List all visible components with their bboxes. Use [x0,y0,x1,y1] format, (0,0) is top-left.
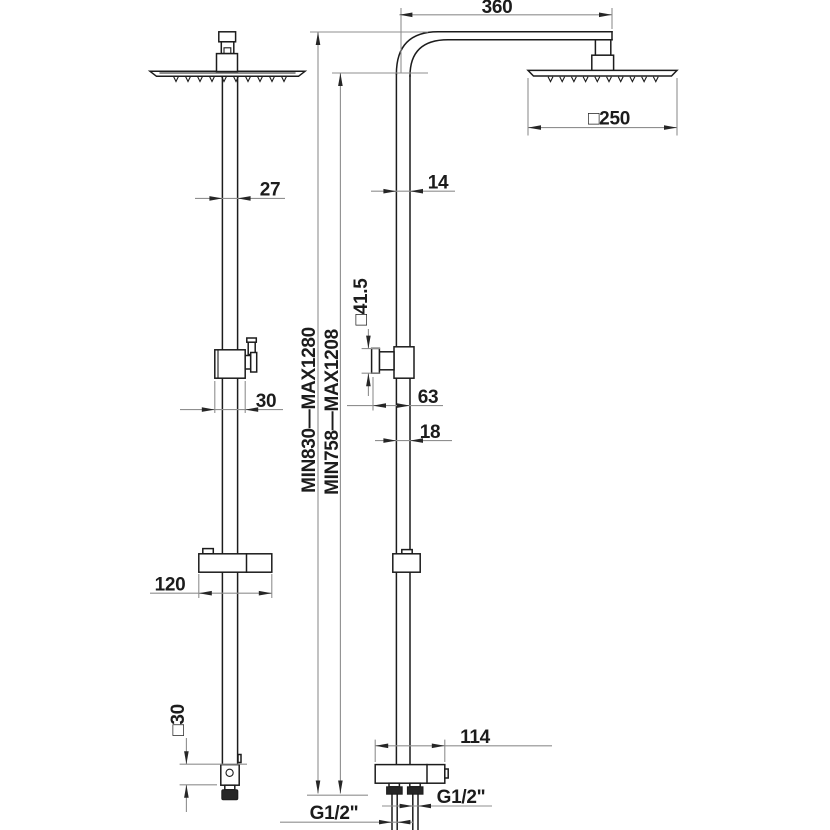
dim-pipe-width-front: 14 [371,172,455,193]
side-head-connector [217,32,238,72]
dim-arm-length: 360 [399,0,612,73]
side-slider-bracket [199,549,272,573]
side-view [150,32,305,800]
dim-height-outer-label: MIN830—MAX1280 [299,327,320,493]
dim-head-size: □250 [528,78,677,136]
dim-diverter-width-side-label: 30 [256,391,277,412]
dim-base-size-label: □30 [168,704,189,736]
side-base [221,755,241,800]
front-head-connector [592,40,614,71]
dim-height-inner-label: MIN758—MAX1208 [322,329,343,495]
side-head-nozzles [174,77,286,82]
front-head-nozzles [548,77,658,81]
dim-outlet-right-label: G1/2" [437,787,486,808]
dim-diverter-size-label: □41.5 [351,278,372,326]
dim-diverter-offset-label: 63 [418,387,439,408]
dim-wall-bracket: 114 [375,727,552,762]
dim-pipe-width-front-label: 14 [428,172,449,193]
dim-height-outer: MIN830—MAX1280 [299,32,428,794]
side-diverter-knob [251,353,257,373]
shower-arm [396,32,612,76]
front-view [372,32,677,830]
dim-head-size-label: □250 [588,109,630,130]
shower-column-drawing: 360 □250 27 14 [0,0,830,830]
dim-diverter-size: □41.5 [351,278,380,396]
dimensions: 360 □250 27 14 [150,0,677,824]
right-outlet-nut [407,787,423,794]
side-inlet-nut [222,790,238,800]
dim-arm-length-label: 360 [482,0,513,18]
side-diverter [215,338,257,378]
technical-drawing-canvas: 360 □250 27 14 [0,0,830,830]
dim-diverter-offset: 63 [347,377,443,411]
dim-lower-pipe-width-label: 18 [420,422,441,443]
left-outlet-nut [387,787,403,794]
dim-diverter-width-side: 30 [180,381,283,413]
front-diverter-stem [379,352,394,370]
front-diverter-knob [372,348,380,373]
dim-lower-pipe-width: 18 [375,422,452,443]
dim-pipe-width-side-label: 27 [260,180,281,201]
dim-outlet-left-label: G1/2" [310,803,359,824]
dim-pipe-width-side: 27 [195,180,285,201]
dim-wall-bracket-label: 114 [460,727,490,748]
dim-slider-bracket: 120 [150,574,272,598]
dim-slider-bracket-label: 120 [155,574,186,595]
front-shower-head [528,70,677,76]
